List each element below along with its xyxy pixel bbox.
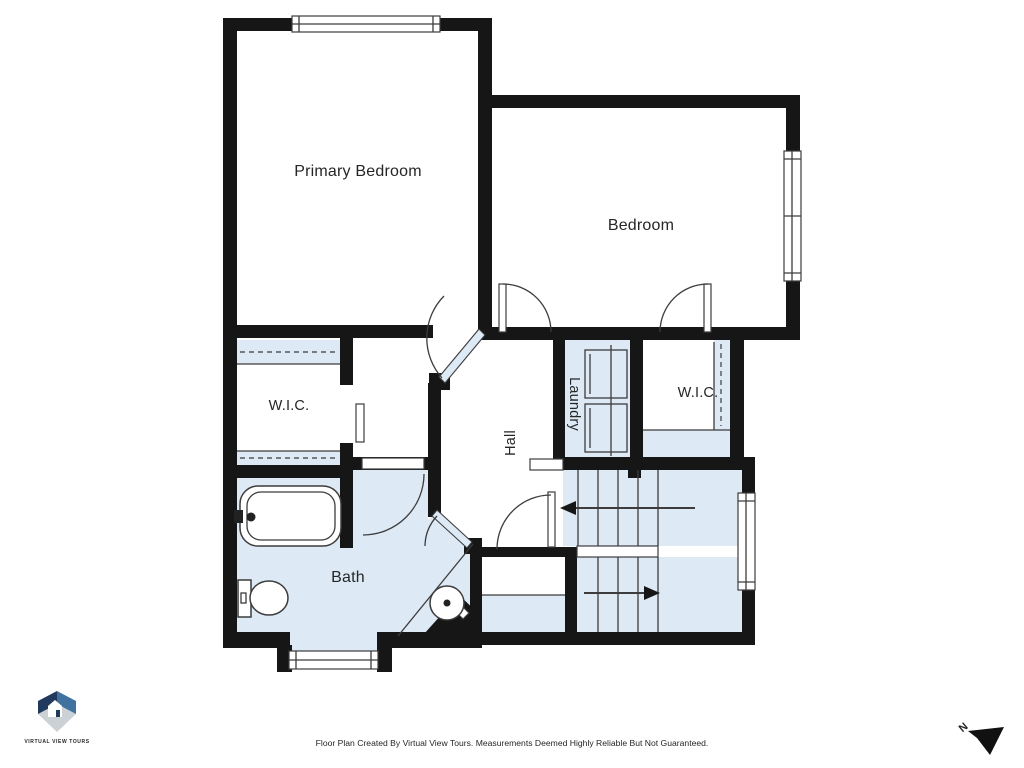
wall-segment [478,18,492,337]
wall-segment [223,465,353,478]
floor-plan-drawing: Primary Bedroom Bedroom W.I.C. Laundry W… [0,0,1024,768]
wall-segment [377,645,392,672]
wall-segment [478,327,800,340]
door-wic-left [340,385,364,443]
window-bath-alcove [289,651,378,669]
wall-segment [377,632,432,648]
north-label: N [957,721,971,735]
north-arrow: N [957,721,1004,755]
room-label-hall: Hall [503,430,519,456]
door-bedroom [499,284,551,332]
floor-plan-page: Primary Bedroom Bedroom W.I.C. Laundry W… [0,0,1024,768]
tub-faucet-icon [234,510,243,523]
room-label-wic-right: W.I.C. [678,385,719,401]
wall-segment [628,470,641,478]
wall-segment [223,325,433,338]
bath-floor [353,470,428,632]
wall-segment [553,340,565,470]
stair-rail-opening [530,459,563,470]
toilet [238,580,288,617]
wall-segment [428,383,441,517]
wall-segment [565,555,577,645]
stairs-lower-run-floor [577,557,742,632]
north-arrow-icon [968,727,1004,755]
window-stairwell [738,493,755,590]
stair-landing-divider [577,546,658,557]
wall-segment [340,470,353,548]
wall-segment [565,457,755,470]
room-label-wic-left: W.I.C. [269,398,310,414]
wall-segment [478,95,800,108]
room-label-bath: Bath [331,569,365,586]
door-primary-bedroom [427,296,485,383]
door-wic-right [660,284,711,332]
wall-segment [470,632,755,645]
logo-cube-icon [38,691,76,732]
bath-floor [340,548,353,632]
window-primary-bedroom [292,16,440,32]
wall-segment [470,547,577,557]
wall-segment [730,327,744,470]
wall-segment [630,340,643,470]
room-label-laundry: Laundry [566,377,582,431]
window-bedroom [784,151,801,281]
logo-text: VIRTUAL VIEW TOURS [24,739,89,745]
footer-disclaimer: Floor Plan Created By Virtual View Tours… [316,738,709,748]
room-label-bedroom: Bedroom [608,217,674,234]
bathtub [234,486,341,546]
virtual-view-tours-logo: VIRTUAL VIEW TOURS [24,691,89,745]
door-stair-closet [497,492,555,549]
stair-closet-floor [482,595,565,632]
room-label-primary-bedroom: Primary Bedroom [294,163,421,180]
